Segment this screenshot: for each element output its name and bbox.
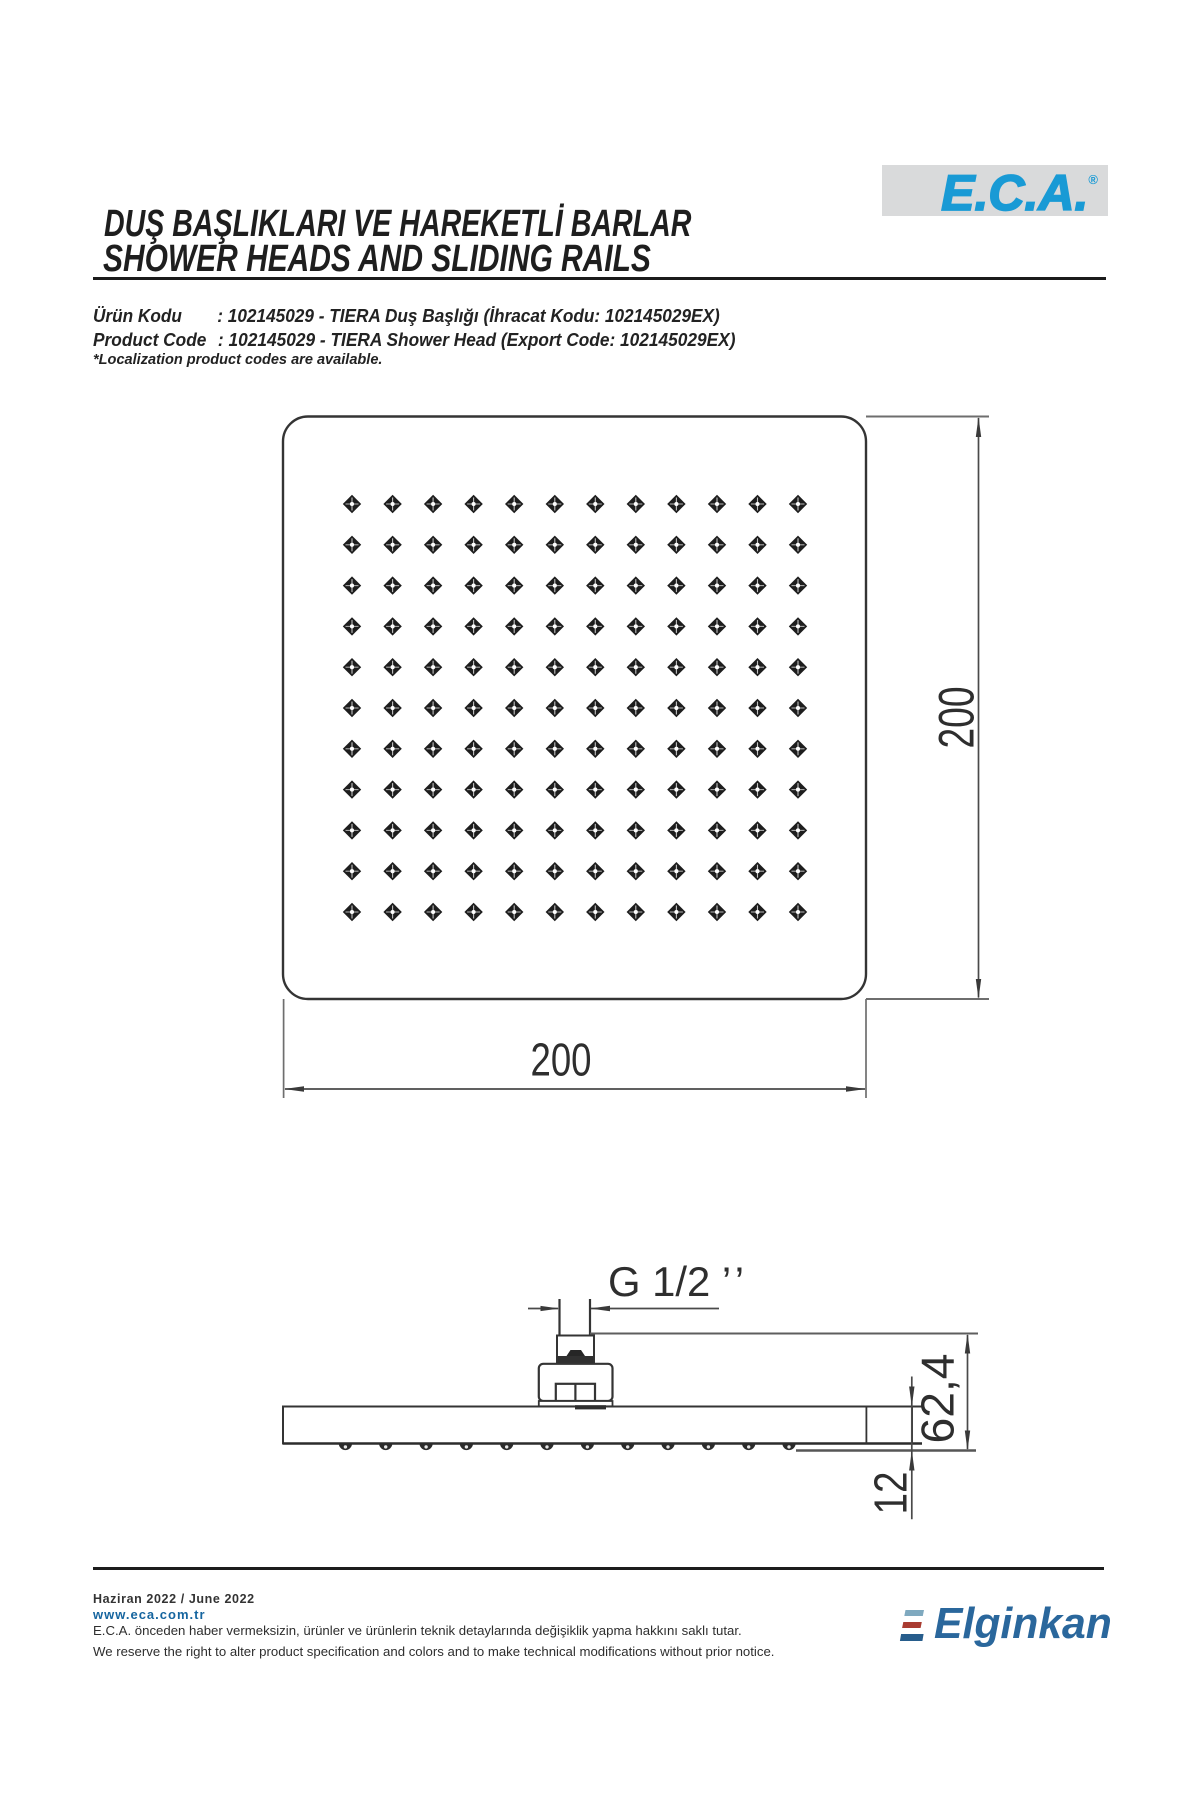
- svg-text:12: 12: [865, 1472, 917, 1515]
- svg-text:62,4: 62,4: [912, 1354, 964, 1444]
- svg-text:200: 200: [531, 1034, 592, 1086]
- svg-text:200: 200: [929, 687, 985, 749]
- svg-text:G 1/2 ’ ’: G 1/2 ’ ’: [608, 1258, 744, 1305]
